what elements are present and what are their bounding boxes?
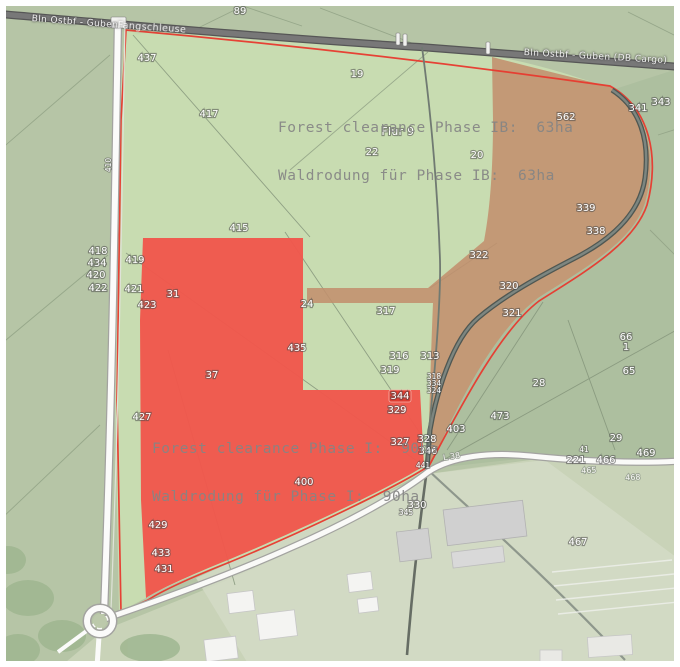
parcel-label: 316 — [389, 351, 408, 362]
phase-1b-annotation-de: Waldrodung für Phase IB: 63ha — [278, 168, 573, 184]
parcel-label: 466 — [596, 455, 615, 466]
parcel-label: 435 — [287, 343, 306, 354]
phase-1b-annotation-en: Forest clearance Phase IB: 63ha — [278, 120, 573, 136]
screenshot-frame: 8943741719Flur 9222056234134333933841541… — [0, 0, 680, 667]
phase-1b-annotation: Forest clearance Phase IB: 63ha Waldrodu… — [278, 88, 573, 216]
parcel-label: 433 — [151, 548, 170, 559]
parcel-label: 320 — [499, 281, 518, 292]
parcel-label: 322 — [469, 250, 488, 261]
parcel-label: 419 — [125, 255, 144, 266]
parcel-label: 24 — [301, 299, 314, 310]
parcel-label: 29 — [610, 433, 623, 444]
parcel-label: 431 — [154, 564, 173, 575]
parcel-label: 473 — [490, 411, 509, 422]
parcel-label: 418 — [88, 246, 107, 257]
parcel-label: 321 — [502, 308, 521, 319]
parcel-label: 324 — [427, 386, 442, 395]
parcel-label: 19 — [351, 69, 364, 80]
parcel-label: 313 — [420, 351, 439, 362]
parcel-label: 31 — [167, 289, 180, 300]
phase-1-annotation-en: Forest clearance Phase I: 90ha — [152, 441, 438, 457]
parcel-label: 28 — [533, 378, 546, 389]
parcel-label: 221 — [566, 455, 585, 466]
parcel-label: 37 — [206, 370, 219, 381]
parcel-label: 422 — [88, 283, 107, 294]
parcel-label: 41 — [579, 445, 589, 454]
parcel-label: 89 — [234, 6, 247, 17]
parcel-label: 437 — [137, 53, 156, 64]
parcel-label: 339 — [576, 203, 595, 214]
road-label: 465 — [581, 465, 597, 475]
parcel-label: 415 — [229, 223, 248, 234]
parcel-label: 344 — [390, 391, 409, 402]
parcel-label: 343 — [651, 97, 670, 108]
parcel-label: 469 — [636, 448, 655, 459]
parcel-label: 410 — [104, 158, 113, 173]
parcel-label: 434 — [87, 258, 106, 269]
road-label: 468 — [625, 473, 641, 483]
phase-1-annotation-de: Waldrodung für Phase I: 90ha — [152, 489, 438, 505]
parcel-label: 338 — [586, 226, 605, 237]
parcel-label: 341 — [628, 103, 647, 114]
parcel-label: 319 — [380, 365, 399, 376]
parcel-label: 421 — [124, 284, 143, 295]
parcel-label: 317 — [376, 306, 395, 317]
phase-1-annotation: Forest clearance Phase I: 90ha Waldrodun… — [152, 409, 438, 537]
parcel-label: 417 — [199, 109, 218, 120]
parcel-label: 420 — [86, 270, 105, 281]
parcel-label: 1 — [623, 342, 629, 353]
parcel-label: 65 — [623, 366, 636, 377]
parcel-label: 403 — [446, 424, 465, 435]
parcel-label: 467 — [568, 537, 587, 548]
map-canvas[interactable]: 8943741719Flur 9222056234134333933841541… — [6, 6, 674, 661]
parcel-label: 423 — [137, 300, 156, 311]
parcel-label: 427 — [132, 412, 151, 423]
